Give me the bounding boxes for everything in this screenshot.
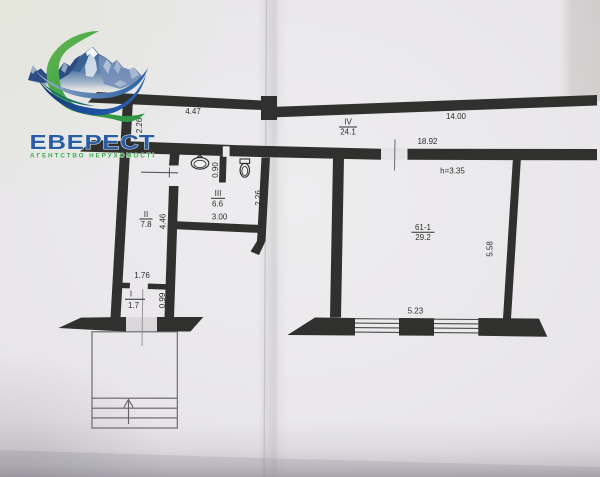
svg-text:29.2: 29.2 xyxy=(415,233,431,242)
svg-text:III: III xyxy=(215,189,222,198)
svg-text:ЕВЕРЕСТ: ЕВЕРЕСТ xyxy=(30,130,156,153)
svg-text:1.76: 1.76 xyxy=(134,271,150,280)
svg-text:0.90: 0.90 xyxy=(211,162,220,178)
svg-text:5.58: 5.58 xyxy=(486,241,495,257)
svg-text:I: I xyxy=(130,290,132,299)
svg-text:5.23: 5.23 xyxy=(408,307,424,316)
svg-text:24.1: 24.1 xyxy=(340,128,356,137)
svg-text:61-1: 61-1 xyxy=(415,223,432,232)
svg-text:4.47: 4.47 xyxy=(185,107,201,116)
svg-text:II: II xyxy=(144,210,148,219)
svg-text:3.00: 3.00 xyxy=(212,213,228,222)
svg-text:6.6: 6.6 xyxy=(212,199,224,208)
svg-text:IV: IV xyxy=(344,118,352,127)
svg-text:7.8: 7.8 xyxy=(140,220,152,229)
svg-text:0.99: 0.99 xyxy=(158,292,167,308)
svg-text:АГЕНТСТВО НЕРУХОМОСТІ: АГЕНТСТВО НЕРУХОМОСТІ xyxy=(30,153,156,160)
svg-text:4.46: 4.46 xyxy=(159,213,168,229)
svg-text:18.92: 18.92 xyxy=(417,137,438,146)
svg-text:2.26: 2.26 xyxy=(254,190,263,206)
svg-text:h=3.35: h=3.35 xyxy=(440,167,465,176)
svg-text:14.00: 14.00 xyxy=(446,112,467,121)
svg-text:1.7: 1.7 xyxy=(128,301,140,310)
